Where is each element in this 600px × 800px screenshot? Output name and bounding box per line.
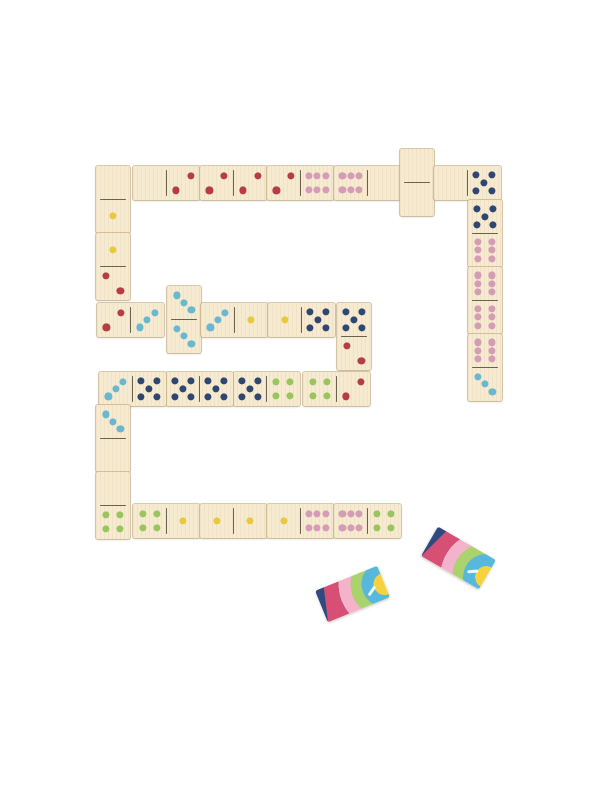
- pip-green: [273, 393, 280, 400]
- pip-dark-blue: [187, 394, 194, 401]
- pip-pink: [475, 238, 482, 245]
- pip-pink: [475, 247, 482, 254]
- pip-dark-blue: [138, 394, 145, 401]
- domino-half-light-blue: [131, 303, 165, 337]
- domino-half-light-blue: [99, 372, 133, 406]
- domino-half-green: [96, 506, 130, 540]
- pip-dark-blue: [489, 171, 496, 178]
- domino-half-light-blue: [96, 405, 130, 439]
- domino-tile-1-6[interactable]: [267, 504, 334, 538]
- domino-tile-2-6[interactable]: [267, 166, 334, 200]
- domino-tile-1-1[interactable]: [200, 504, 267, 538]
- domino-half-dark-blue: [302, 303, 336, 337]
- pip-pink: [322, 524, 329, 531]
- domino-half-dark-blue: [337, 303, 371, 337]
- pip-pink: [488, 238, 495, 245]
- domino-half-pink: [468, 234, 502, 268]
- domino-half-blank: [96, 472, 130, 506]
- domino-half-green: [368, 504, 402, 538]
- domino-half-blank: [96, 166, 130, 200]
- pip-red: [342, 393, 349, 400]
- pip-dark-blue: [213, 385, 220, 392]
- pip-dark-blue: [246, 385, 253, 392]
- pip-red: [221, 172, 228, 179]
- pip-light-blue: [102, 411, 109, 418]
- pip-dark-blue: [254, 377, 261, 384]
- pip-yellow: [180, 517, 187, 524]
- pip-pink: [305, 173, 312, 180]
- pip-dark-blue: [490, 205, 497, 212]
- rainbow-back-domino-tile[interactable]: [420, 527, 495, 590]
- domino-half-pink: [301, 166, 335, 200]
- domino-half-light-blue: [167, 286, 201, 320]
- pip-dark-blue: [323, 325, 330, 332]
- pip-yellow: [248, 316, 255, 323]
- domino-half-pink: [468, 301, 502, 335]
- domino-half-pink: [334, 504, 368, 538]
- pip-dark-blue: [238, 394, 245, 401]
- domino-tile-0-0[interactable]: [400, 149, 434, 216]
- pip-light-blue: [136, 324, 143, 331]
- domino-half-yellow: [268, 303, 302, 337]
- domino-half-red: [96, 267, 130, 301]
- domino-tile-5-6[interactable]: [468, 200, 502, 267]
- domino-half-yellow: [96, 200, 130, 234]
- pip-light-blue: [222, 309, 229, 316]
- domino-tile-1-5[interactable]: [268, 303, 335, 337]
- domino-half-green: [133, 504, 167, 538]
- pip-pink: [488, 272, 495, 279]
- pip-dark-blue: [171, 377, 178, 384]
- pip-dark-blue: [205, 394, 212, 401]
- pip-yellow: [213, 517, 220, 524]
- domino-tile-5-4[interactable]: [233, 372, 300, 406]
- brand-signature-mark: [467, 570, 478, 573]
- pip-dark-blue: [490, 221, 497, 228]
- pip-pink: [356, 186, 363, 193]
- pip-red: [118, 309, 125, 316]
- domino-tile-0-1[interactable]: [96, 166, 130, 233]
- pip-dark-blue: [323, 308, 330, 315]
- pip-light-blue: [180, 299, 187, 306]
- domino-half-red: [337, 372, 371, 406]
- pip-light-blue: [144, 316, 151, 323]
- pip-pink: [356, 511, 363, 518]
- pip-dark-blue: [146, 385, 153, 392]
- domino-tile-3-0[interactable]: [96, 405, 130, 472]
- domino-tile-3-3[interactable]: [167, 286, 201, 353]
- domino-half-red: [200, 166, 234, 200]
- domino-half-light-blue: [468, 368, 502, 402]
- pip-pink: [475, 356, 482, 363]
- pip-dark-blue: [315, 316, 322, 323]
- pip-dark-blue: [342, 324, 349, 331]
- domino-half-dark-blue: [166, 372, 200, 406]
- pip-pink: [314, 186, 321, 193]
- pip-green: [117, 526, 124, 533]
- domino-tile-5-5[interactable]: [166, 372, 233, 406]
- pip-red: [117, 287, 124, 294]
- domino-tile-2-3[interactable]: [97, 303, 164, 337]
- pip-pink: [356, 524, 363, 531]
- pip-dark-blue: [154, 377, 161, 384]
- rainbow-back-domino-tile[interactable]: [315, 566, 390, 623]
- pip-light-blue: [474, 373, 481, 380]
- pip-light-blue: [151, 309, 158, 316]
- pip-pink: [488, 339, 495, 346]
- pip-dark-blue: [138, 377, 145, 384]
- pip-pink: [475, 347, 482, 354]
- pip-yellow: [109, 213, 116, 220]
- pip-green: [374, 525, 381, 532]
- pip-red: [187, 172, 194, 179]
- pip-red: [288, 172, 295, 179]
- pip-pink: [347, 511, 354, 518]
- domino-half-yellow: [167, 504, 201, 538]
- domino-half-dark-blue: [468, 166, 502, 200]
- pip-pink: [475, 280, 482, 287]
- domino-half-light-blue: [201, 303, 235, 337]
- domino-half-blank: [133, 166, 167, 200]
- pip-pink: [475, 289, 482, 296]
- pip-red: [206, 187, 213, 194]
- domino-half-red: [234, 166, 268, 200]
- domino-half-dark-blue: [133, 372, 167, 406]
- pip-yellow: [281, 316, 288, 323]
- pip-light-blue: [188, 307, 195, 314]
- pip-red: [343, 342, 350, 349]
- pip-dark-blue: [473, 221, 480, 228]
- pip-dark-blue: [205, 377, 212, 384]
- pip-dark-blue: [342, 308, 349, 315]
- pip-pink: [339, 186, 346, 193]
- pip-green: [273, 378, 280, 385]
- domino-tile-4-2[interactable]: [303, 372, 370, 406]
- pip-red: [254, 172, 261, 179]
- pip-green: [388, 525, 395, 532]
- pip-yellow: [109, 246, 116, 253]
- pip-light-blue: [188, 340, 195, 347]
- pip-red: [357, 378, 364, 385]
- pip-red: [172, 187, 179, 194]
- domino-half-green: [267, 372, 301, 406]
- pip-green: [153, 525, 160, 532]
- pip-dark-blue: [473, 205, 480, 212]
- domino-tile-2-2[interactable]: [200, 166, 267, 200]
- pip-pink: [305, 524, 312, 531]
- pip-light-blue: [214, 316, 221, 323]
- pip-dark-blue: [179, 385, 186, 392]
- pip-pink: [488, 255, 495, 262]
- pip-dark-blue: [359, 324, 366, 331]
- pip-pink: [475, 305, 482, 312]
- pip-light-blue: [173, 325, 180, 332]
- domino-half-yellow: [267, 504, 301, 538]
- domino-half-yellow: [200, 504, 234, 538]
- pip-pink: [488, 356, 495, 363]
- pip-dark-blue: [238, 377, 245, 384]
- pip-pink: [488, 314, 495, 321]
- pip-pink: [475, 322, 482, 329]
- pip-dark-blue: [254, 394, 261, 401]
- pip-dark-blue: [221, 377, 228, 384]
- pip-pink: [347, 524, 354, 531]
- pip-dark-blue: [359, 308, 366, 315]
- pip-red: [273, 187, 280, 194]
- domino-half-pink: [301, 504, 335, 538]
- pip-green: [139, 510, 146, 517]
- pip-dark-blue: [473, 171, 480, 178]
- domino-half-yellow: [96, 233, 130, 267]
- pip-pink: [314, 511, 321, 518]
- pip-pink: [339, 173, 346, 180]
- pip-pink: [488, 247, 495, 254]
- pip-green: [287, 393, 294, 400]
- domino-half-green: [303, 372, 337, 406]
- pip-light-blue: [112, 385, 119, 392]
- pip-pink: [475, 255, 482, 262]
- pip-light-blue: [481, 381, 488, 388]
- pip-pink: [339, 524, 346, 531]
- pip-pink: [488, 322, 495, 329]
- domino-half-red: [267, 166, 301, 200]
- domino-board: [0, 0, 600, 800]
- pip-green: [323, 393, 330, 400]
- domino-half-yellow: [235, 303, 269, 337]
- pip-pink: [314, 173, 321, 180]
- domino-tile-0-5[interactable]: [434, 166, 501, 200]
- pip-dark-blue: [221, 394, 228, 401]
- pip-pink: [305, 511, 312, 518]
- domino-half-blank: [368, 166, 402, 200]
- pip-green: [102, 512, 109, 519]
- pip-green: [309, 378, 316, 385]
- pip-light-blue: [120, 378, 127, 385]
- pip-pink: [488, 280, 495, 287]
- pip-light-blue: [173, 292, 180, 299]
- pip-pink: [475, 339, 482, 346]
- pip-dark-blue: [154, 394, 161, 401]
- domino-tile-6-6[interactable]: [468, 267, 502, 334]
- pip-light-blue: [109, 418, 116, 425]
- domino-tile-4-1[interactable]: [133, 504, 200, 538]
- pip-pink: [475, 314, 482, 321]
- pip-red: [239, 187, 246, 194]
- pip-dark-blue: [350, 316, 357, 323]
- pip-green: [139, 525, 146, 532]
- pip-yellow: [280, 517, 287, 524]
- pip-light-blue: [117, 426, 124, 433]
- domino-half-pink: [468, 267, 502, 301]
- pip-dark-blue: [307, 308, 314, 315]
- pip-red: [102, 272, 109, 279]
- pip-dark-blue: [307, 325, 314, 332]
- pip-green: [102, 526, 109, 533]
- pip-pink: [488, 305, 495, 312]
- domino-half-pink: [468, 334, 502, 368]
- domino-half-light-blue: [167, 320, 201, 354]
- pip-pink: [322, 173, 329, 180]
- pip-light-blue: [180, 333, 187, 340]
- pip-dark-blue: [187, 377, 194, 384]
- pip-pink: [488, 289, 495, 296]
- pip-pink: [339, 511, 346, 518]
- pip-yellow: [247, 517, 254, 524]
- domino-half-blank: [400, 149, 434, 183]
- pip-red: [358, 357, 365, 364]
- domino-tile-5-2[interactable]: [337, 303, 371, 370]
- domino-half-pink: [334, 166, 368, 200]
- pip-pink: [322, 511, 329, 518]
- pip-pink: [475, 272, 482, 279]
- domino-tile-3-1[interactable]: [201, 303, 268, 337]
- pip-pink: [322, 186, 329, 193]
- domino-half-blank: [96, 439, 130, 473]
- domino-half-blank: [434, 166, 468, 200]
- domino-half-red: [97, 303, 131, 337]
- domino-half-dark-blue: [468, 200, 502, 234]
- domino-half-dark-blue: [233, 372, 267, 406]
- pip-dark-blue: [481, 179, 488, 186]
- product-photo: { "scene": { "background_color": "#fffff…: [0, 0, 600, 800]
- domino-tile-6-0[interactable]: [334, 166, 401, 200]
- pip-green: [309, 393, 316, 400]
- pip-green: [374, 510, 381, 517]
- domino-tile-6-3[interactable]: [468, 334, 502, 401]
- domino-tile-1-2[interactable]: [96, 233, 130, 300]
- pip-pink: [305, 186, 312, 193]
- domino-tile-3-5[interactable]: [99, 372, 166, 406]
- pip-green: [323, 378, 330, 385]
- pip-green: [388, 510, 395, 517]
- pip-light-blue: [207, 324, 214, 331]
- domino-half-dark-blue: [200, 372, 234, 406]
- domino-tile-6-4[interactable]: [334, 504, 401, 538]
- domino-tile-0-4[interactable]: [96, 472, 130, 539]
- pip-pink: [314, 524, 321, 531]
- domino-tile-0-2[interactable]: [133, 166, 200, 200]
- pip-dark-blue: [473, 188, 480, 195]
- pip-light-blue: [489, 388, 496, 395]
- domino-half-blank: [400, 183, 434, 217]
- pip-red: [103, 324, 110, 331]
- brand-signature-mark: [367, 586, 375, 597]
- pip-green: [117, 512, 124, 519]
- domino-half-red: [337, 337, 371, 371]
- domino-half-yellow: [234, 504, 268, 538]
- pip-pink: [347, 186, 354, 193]
- pip-dark-blue: [489, 188, 496, 195]
- pip-light-blue: [105, 393, 112, 400]
- pip-dark-blue: [481, 213, 488, 220]
- pip-pink: [347, 173, 354, 180]
- pip-green: [153, 510, 160, 517]
- domino-half-red: [167, 166, 201, 200]
- pip-pink: [356, 173, 363, 180]
- pip-green: [287, 378, 294, 385]
- pip-pink: [488, 347, 495, 354]
- pip-dark-blue: [171, 394, 178, 401]
